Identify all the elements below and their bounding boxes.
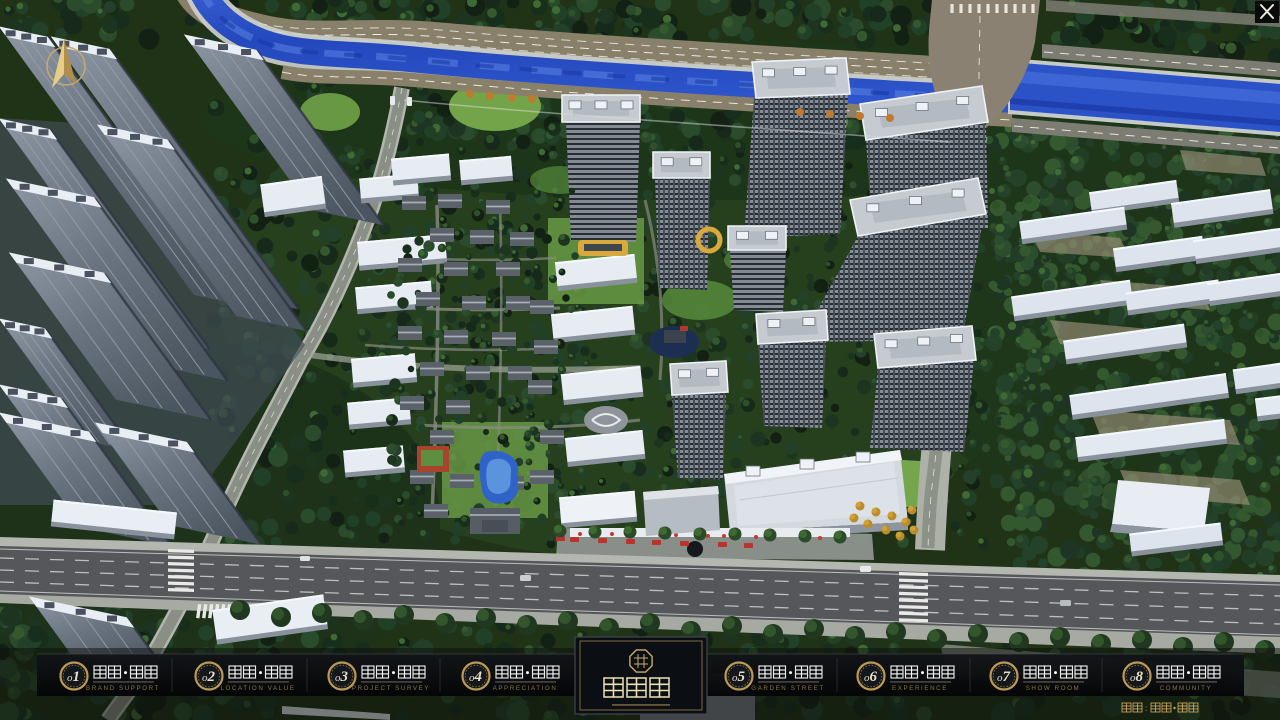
svg-text:PROJECT SURVEY: PROJECT SURVEY [352, 685, 430, 692]
svg-text:SHOW ROOM: SHOW ROOM [1026, 685, 1081, 692]
svg-text:o2: o2 [202, 669, 216, 685]
svg-text:BRAND SUPPORT: BRAND SUPPORT [86, 685, 160, 692]
svg-text:o8: o8 [1130, 669, 1144, 685]
svg-text:o7: o7 [997, 669, 1011, 685]
svg-text:APPRECIATION: APPRECIATION [493, 685, 558, 692]
svg-text:EXPERIENCE: EXPERIENCE [892, 685, 948, 692]
svg-text::: : [1145, 704, 1147, 713]
svg-text:o6: o6 [864, 669, 878, 685]
svg-text:COMMUNITY: COMMUNITY [1160, 685, 1213, 692]
svg-text:o3: o3 [335, 669, 349, 685]
svg-text:o5: o5 [732, 669, 746, 685]
svg-text:o1: o1 [67, 669, 80, 685]
svg-text:o4: o4 [469, 669, 483, 685]
svg-text:LOCATION VALUE: LOCATION VALUE [220, 685, 295, 692]
svg-text:GARDEN STREET: GARDEN STREET [751, 685, 824, 692]
